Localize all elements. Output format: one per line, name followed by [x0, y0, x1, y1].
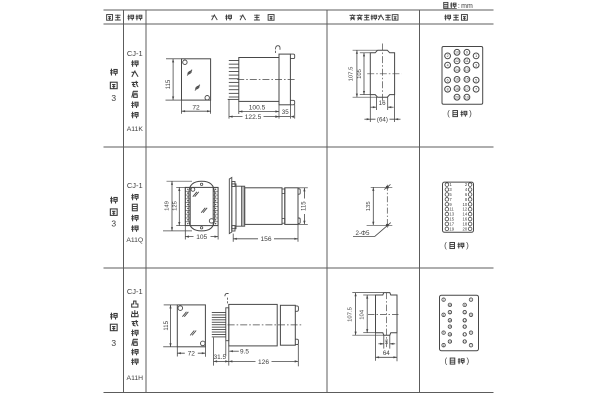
svg-text:3: 3	[111, 219, 116, 229]
svg-text:72: 72	[192, 104, 200, 111]
svg-text:CJ-1: CJ-1	[127, 181, 143, 190]
svg-text:72: 72	[188, 351, 196, 358]
svg-text:107.5: 107.5	[348, 66, 354, 81]
svg-text:(: (	[447, 109, 450, 118]
svg-text:13: 13	[463, 318, 467, 322]
svg-text:7: 7	[475, 88, 477, 92]
svg-text:17: 17	[463, 333, 467, 337]
svg-text:A11K: A11K	[127, 126, 144, 133]
svg-text:64: 64	[383, 350, 390, 357]
svg-text:A11H: A11H	[127, 375, 144, 382]
svg-text:10: 10	[448, 303, 452, 307]
svg-text:11: 11	[465, 59, 469, 63]
svg-text:mm: mm	[461, 3, 473, 10]
svg-text:14: 14	[455, 68, 459, 72]
svg-text:20: 20	[448, 340, 452, 344]
svg-text:19: 19	[465, 96, 469, 100]
svg-text:100.5: 100.5	[249, 105, 266, 112]
svg-text:125: 125	[172, 200, 178, 211]
svg-text:): )	[466, 241, 469, 250]
svg-text:4: 4	[447, 63, 449, 67]
svg-text:): )	[466, 357, 469, 366]
svg-text:CJ-1: CJ-1	[127, 49, 143, 58]
svg-text:115: 115	[164, 320, 170, 330]
svg-text:9.5: 9.5	[240, 349, 249, 356]
svg-text:15: 15	[465, 78, 469, 82]
svg-text:105: 105	[196, 234, 207, 241]
svg-text:18: 18	[448, 333, 452, 337]
svg-text:18: 18	[455, 87, 459, 91]
svg-text:12: 12	[455, 59, 459, 63]
svg-text:16: 16	[448, 325, 452, 329]
svg-text:156: 156	[260, 236, 271, 243]
svg-text:1: 1	[475, 54, 477, 58]
svg-text:): )	[469, 109, 472, 118]
svg-text:122.5: 122.5	[245, 114, 262, 121]
svg-text:19: 19	[463, 340, 467, 344]
svg-text:20: 20	[455, 96, 459, 100]
svg-text:16: 16	[379, 100, 386, 107]
svg-text:16: 16	[455, 78, 459, 82]
svg-text:11: 11	[463, 310, 466, 314]
svg-text:126: 126	[258, 359, 269, 366]
svg-text:9: 9	[466, 51, 468, 55]
svg-text:16: 16	[384, 339, 390, 345]
svg-text:31.5: 31.5	[214, 354, 227, 361]
svg-text:3: 3	[111, 338, 116, 348]
svg-text:10: 10	[455, 51, 459, 55]
svg-text:6: 6	[447, 78, 449, 82]
svg-text:12: 12	[448, 310, 452, 314]
svg-text:3: 3	[475, 63, 477, 67]
svg-text:14: 14	[448, 318, 452, 322]
svg-text:20: 20	[463, 226, 468, 231]
svg-text:3: 3	[111, 93, 116, 103]
svg-text:5: 5	[475, 78, 477, 82]
svg-text:104: 104	[359, 309, 365, 320]
svg-text:105: 105	[357, 68, 363, 79]
svg-text:2: 2	[447, 54, 449, 58]
svg-text:107.5: 107.5	[348, 306, 354, 321]
svg-text:13: 13	[465, 68, 469, 72]
svg-text:CJ-1: CJ-1	[127, 287, 143, 296]
svg-text:A11Q: A11Q	[126, 237, 143, 244]
svg-text:149: 149	[164, 201, 170, 211]
svg-text:115: 115	[166, 79, 172, 89]
svg-text:35: 35	[282, 109, 289, 116]
svg-text:115: 115	[302, 201, 308, 211]
svg-text:17: 17	[465, 87, 469, 91]
svg-text:(64): (64)	[377, 117, 388, 124]
svg-text:15: 15	[463, 325, 467, 329]
svg-text:8: 8	[447, 88, 449, 92]
svg-text:135: 135	[366, 201, 372, 212]
svg-text:(: (	[444, 357, 447, 366]
svg-text::: :	[458, 3, 460, 10]
svg-text:2-Φ5: 2-Φ5	[356, 230, 370, 237]
svg-text:19: 19	[449, 226, 454, 231]
svg-text:(: (	[444, 241, 447, 250]
